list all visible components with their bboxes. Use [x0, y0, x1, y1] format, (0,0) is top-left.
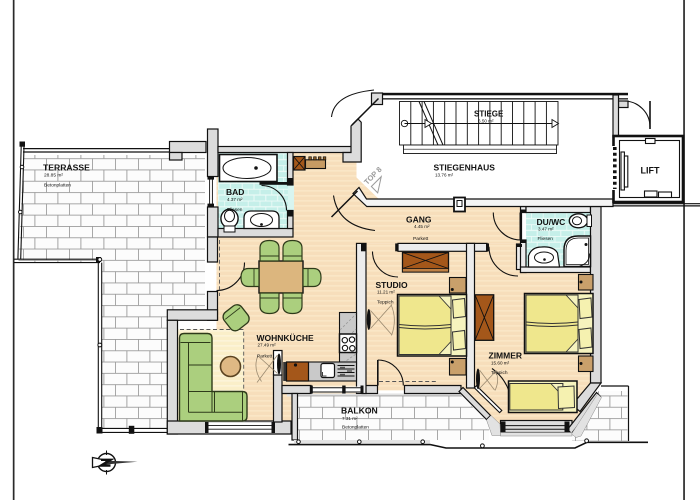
svg-text:15.60 m²: 15.60 m² [491, 361, 510, 366]
svg-text:Betonplatten: Betonplatten [44, 183, 71, 189]
svg-text:TERRASSE: TERRASSE [43, 163, 90, 173]
svg-text:4.45 m²: 4.45 m² [414, 224, 430, 229]
svg-text:BALKON: BALKON [341, 406, 378, 416]
svg-text:27.49 m²: 27.49 m² [258, 343, 277, 348]
svg-text:GANG: GANG [406, 215, 432, 225]
svg-text:STIEGENHAUS: STIEGENHAUS [434, 163, 496, 173]
svg-text:28.85 m²: 28.85 m² [44, 173, 63, 179]
svg-text:3.47 m²: 3.47 m² [538, 227, 554, 232]
svg-text:BAD: BAD [226, 187, 244, 197]
svg-text:7.31 m²: 7.31 m² [342, 416, 358, 421]
svg-text:WOHNKÜCHE: WOHNKÜCHE [257, 333, 314, 343]
svg-text:6.50 m²: 6.50 m² [478, 119, 494, 124]
svg-text:Parkett: Parkett [257, 354, 273, 360]
svg-text:11.21 m²: 11.21 m² [377, 290, 395, 295]
svg-text:STIEGE: STIEGE [474, 110, 504, 119]
svg-text:Teppich: Teppich [377, 300, 394, 306]
svg-text:Betonplatten: Betonplatten [342, 425, 369, 431]
svg-text:ZIMMER: ZIMMER [489, 351, 523, 361]
svg-text:Fliesen: Fliesen [538, 236, 554, 242]
svg-text:4.37 m²: 4.37 m² [227, 197, 243, 202]
svg-text:13.76 m²: 13.76 m² [435, 173, 454, 178]
svg-text:DU/WC: DU/WC [537, 217, 566, 227]
svg-text:LIFT: LIFT [641, 166, 660, 176]
svg-text:Parkett: Parkett [413, 236, 429, 242]
svg-text:Teppich: Teppich [491, 370, 508, 376]
svg-text:STUDIO: STUDIO [376, 280, 409, 290]
svg-text:Fliesen: Fliesen [227, 207, 243, 213]
